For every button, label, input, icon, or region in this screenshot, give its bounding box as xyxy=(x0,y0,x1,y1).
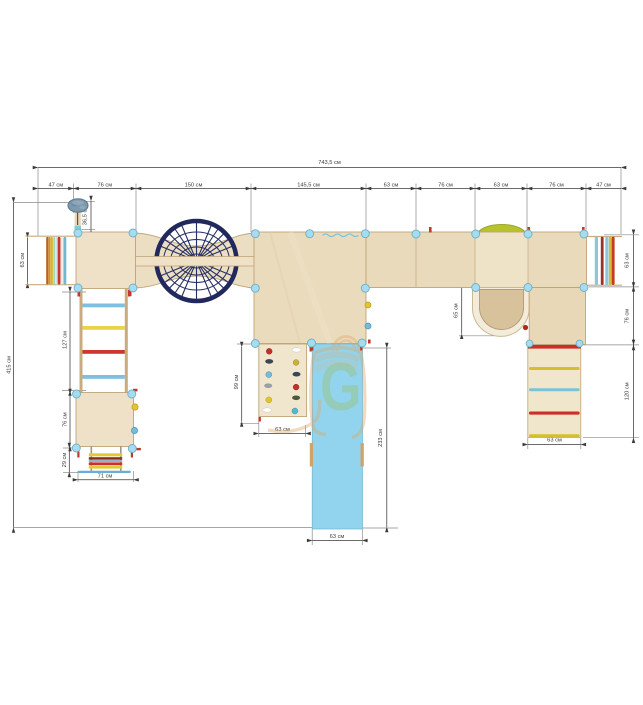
svg-text:99 см: 99 см xyxy=(234,375,240,390)
svg-text:743,5 см: 743,5 см xyxy=(318,160,341,166)
svg-text:63 см: 63 см xyxy=(20,253,26,268)
svg-text:G: G xyxy=(320,349,362,425)
svg-text:120 см: 120 см xyxy=(625,382,631,400)
svg-text:233 см: 233 см xyxy=(378,429,384,447)
svg-text:71 см: 71 см xyxy=(98,474,113,480)
svg-text:76 см: 76 см xyxy=(438,183,453,189)
svg-text:150 см: 150 см xyxy=(185,183,203,189)
svg-text:63 см: 63 см xyxy=(330,534,345,540)
svg-text:145,5 см: 145,5 см xyxy=(297,183,320,189)
svg-text:65 см: 65 см xyxy=(454,303,460,318)
svg-text:47 см: 47 см xyxy=(596,183,611,189)
svg-text:47 см: 47 см xyxy=(48,183,63,189)
svg-text:415 см: 415 см xyxy=(7,356,13,374)
svg-text:76 см: 76 см xyxy=(63,412,69,427)
svg-text:76 см: 76 см xyxy=(97,183,112,189)
svg-text:76 см: 76 см xyxy=(625,309,631,324)
svg-text:63 см: 63 см xyxy=(384,183,399,189)
svg-text:76 см: 76 см xyxy=(549,183,564,189)
svg-text:63 см: 63 см xyxy=(625,253,631,268)
svg-text:29 см: 29 см xyxy=(62,453,68,468)
svg-text:127 см: 127 см xyxy=(63,331,69,349)
svg-text:63 см: 63 см xyxy=(547,438,562,444)
svg-text:63 см: 63 см xyxy=(494,183,509,189)
